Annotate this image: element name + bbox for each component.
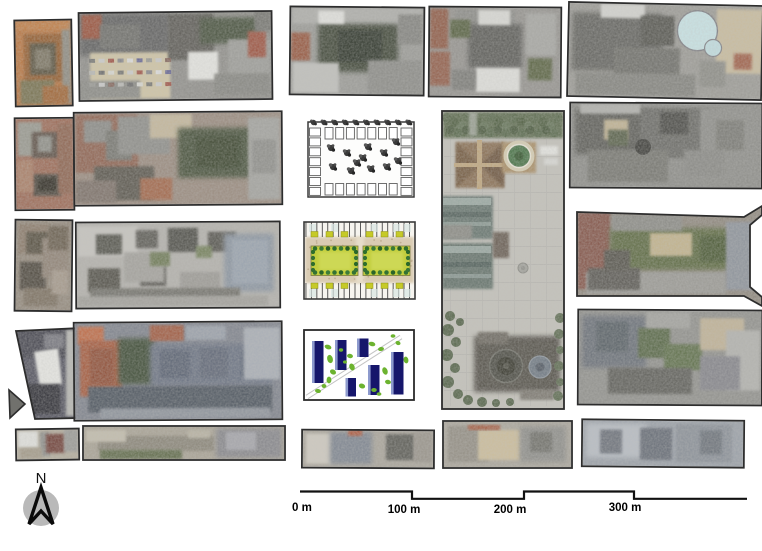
svg-text:200 m: 200 m bbox=[494, 504, 527, 516]
svg-text:100 m: 100 m bbox=[388, 504, 421, 516]
svg-text:300 m: 300 m bbox=[609, 502, 642, 514]
svg-text:0 m: 0 m bbox=[292, 502, 312, 514]
